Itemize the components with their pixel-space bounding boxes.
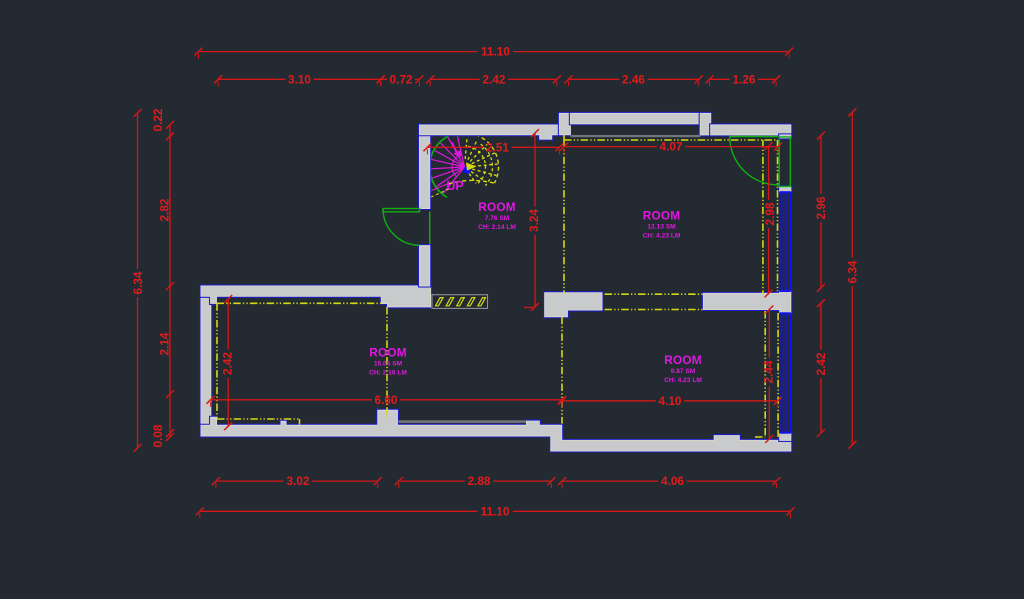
svg-text:1.26: 1.26 bbox=[733, 72, 756, 86]
svg-text:7.76 SM: 7.76 SM bbox=[485, 215, 510, 222]
svg-text:2.14: 2.14 bbox=[158, 332, 172, 355]
svg-text:0.22: 0.22 bbox=[151, 108, 165, 131]
svg-text:ROOM: ROOM bbox=[369, 346, 407, 360]
svg-text:3.24: 3.24 bbox=[527, 209, 541, 232]
svg-text:2.88: 2.88 bbox=[468, 474, 491, 488]
svg-text:15.05 SM: 15.05 SM bbox=[374, 360, 403, 367]
svg-text:UP: UP bbox=[446, 179, 463, 193]
svg-text:2.42: 2.42 bbox=[221, 352, 235, 375]
svg-text:0.08: 0.08 bbox=[151, 424, 165, 447]
svg-text:9.87 SM: 9.87 SM bbox=[671, 368, 696, 375]
svg-text:12.13 SM: 12.13 SM bbox=[647, 223, 676, 230]
svg-text:2.44: 2.44 bbox=[762, 360, 776, 383]
svg-text:11.10: 11.10 bbox=[481, 504, 510, 518]
svg-text:0.72: 0.72 bbox=[390, 72, 413, 86]
svg-text:3.02: 3.02 bbox=[287, 474, 310, 488]
svg-text:ROOM: ROOM bbox=[643, 209, 681, 223]
svg-text:6.34: 6.34 bbox=[131, 271, 145, 294]
svg-text:CH: 2.14 LM: CH: 2.14 LM bbox=[478, 224, 516, 231]
svg-text:2.82: 2.82 bbox=[158, 198, 172, 221]
svg-text:6.60: 6.60 bbox=[375, 393, 398, 407]
svg-text:2.98: 2.98 bbox=[763, 202, 777, 225]
svg-text:6.34: 6.34 bbox=[845, 260, 859, 283]
svg-text:2.42: 2.42 bbox=[814, 352, 828, 375]
svg-text:CH: 4.23 LM: CH: 4.23 LM bbox=[643, 232, 681, 239]
svg-text:ROOM: ROOM bbox=[664, 353, 702, 367]
svg-text:2.51: 2.51 bbox=[486, 140, 509, 154]
svg-text:3.10: 3.10 bbox=[288, 72, 311, 86]
svg-text:4.07: 4.07 bbox=[660, 140, 683, 154]
svg-text:CH: 4.23 LM: CH: 4.23 LM bbox=[664, 377, 702, 384]
svg-text:2.46: 2.46 bbox=[622, 72, 645, 86]
svg-text:ROOM: ROOM bbox=[478, 200, 516, 214]
svg-text:4.10: 4.10 bbox=[659, 394, 682, 408]
svg-text:2.42: 2.42 bbox=[483, 72, 506, 86]
svg-text:4.06: 4.06 bbox=[661, 474, 684, 488]
svg-text:11.10: 11.10 bbox=[481, 45, 510, 59]
svg-text:CH: 2.16 LM: CH: 2.16 LM bbox=[369, 369, 407, 376]
svg-text:2.96: 2.96 bbox=[814, 196, 828, 219]
